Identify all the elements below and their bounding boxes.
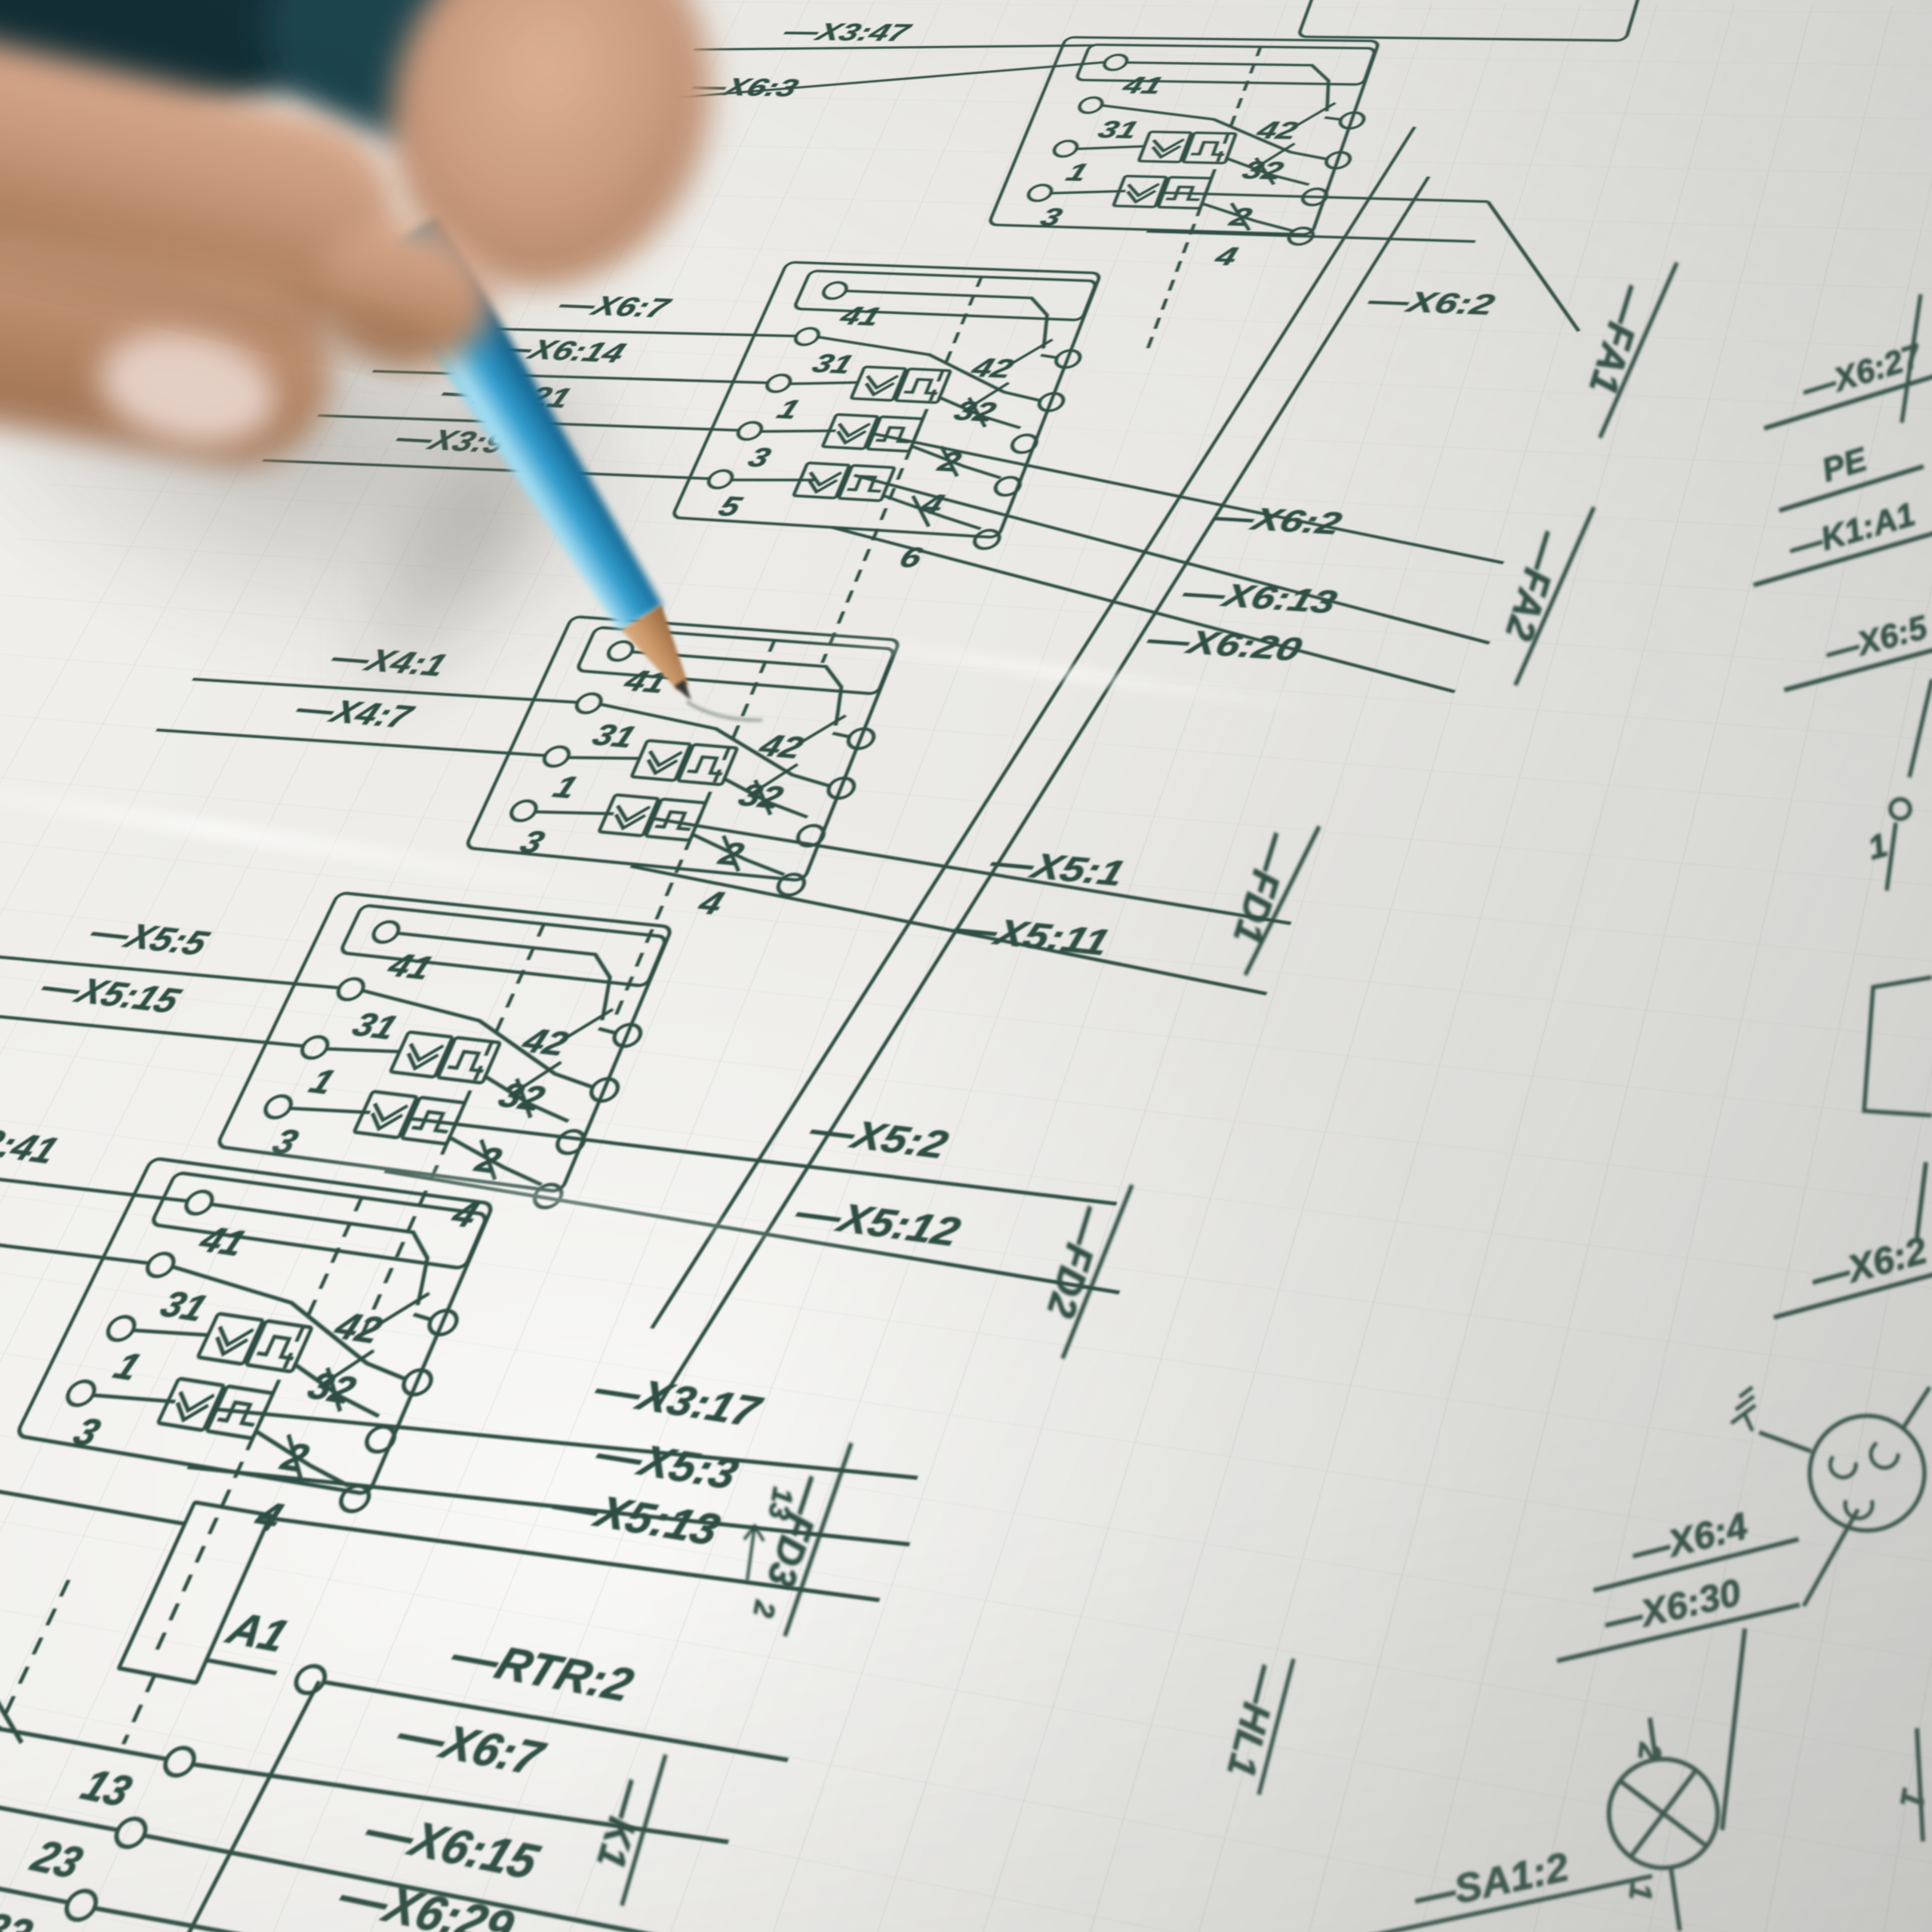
svg-text:—X6:7: —X6:7 bbox=[552, 289, 676, 323]
svg-text:2: 2 bbox=[1225, 204, 1255, 232]
svg-text:—X6:20: —X6:20 bbox=[1141, 621, 1306, 668]
svg-text:31: 31 bbox=[154, 1285, 212, 1330]
svg-text:—X6:7: —X6:7 bbox=[389, 1707, 552, 1786]
svg-text:—X6:2: —X6:2 bbox=[1207, 499, 1346, 540]
svg-text:—X6:21: —X6:21 bbox=[435, 377, 576, 414]
svg-text:—X6:4: —X6:4 bbox=[1627, 1505, 1752, 1574]
svg-text:5: 5 bbox=[714, 492, 746, 523]
svg-text:—X5:11: —X5:11 bbox=[946, 908, 1114, 963]
svg-text:2: 2 bbox=[274, 1436, 315, 1481]
svg-text:—SA1:2: —SA1:2 bbox=[1410, 1844, 1573, 1921]
svg-text:42: 42 bbox=[753, 729, 808, 765]
svg-text:31: 31 bbox=[346, 1007, 402, 1047]
svg-text:41: 41 bbox=[619, 665, 672, 700]
svg-text:41: 41 bbox=[381, 948, 437, 987]
svg-text:—X3:47: —X3:47 bbox=[778, 18, 915, 46]
svg-text:42: 42 bbox=[328, 1306, 388, 1352]
svg-text:A1: A1 bbox=[219, 1603, 295, 1661]
svg-text:—X5:5: —X5:5 bbox=[82, 913, 216, 963]
svg-text:1: 1 bbox=[303, 1063, 340, 1102]
svg-text:1: 1 bbox=[1893, 1786, 1932, 1810]
svg-text:1: 1 bbox=[1623, 1881, 1660, 1902]
svg-text:41: 41 bbox=[192, 1220, 251, 1264]
svg-text:—X4:1: —X4:1 bbox=[325, 640, 453, 682]
svg-text:33: 33 bbox=[0, 1905, 39, 1932]
svg-text:2: 2 bbox=[1632, 1740, 1669, 1762]
svg-text:—X5:12: —X5:12 bbox=[789, 1190, 966, 1255]
svg-text:31: 31 bbox=[808, 349, 857, 379]
svg-text:—X6:14: —X6:14 bbox=[490, 333, 631, 368]
svg-text:2: 2 bbox=[713, 837, 749, 873]
svg-text:—X3:9: —X3:9 bbox=[389, 422, 512, 459]
svg-text:—X4:7: —X4:7 bbox=[289, 691, 420, 734]
svg-text:31: 31 bbox=[587, 719, 640, 755]
svg-text:42: 42 bbox=[967, 354, 1017, 384]
svg-text:—X5:15: —X5:15 bbox=[33, 967, 188, 1020]
svg-text:—X6:2: —X6:2 bbox=[1363, 285, 1498, 321]
svg-text:4: 4 bbox=[693, 885, 728, 922]
svg-text:42: 42 bbox=[515, 1023, 573, 1063]
svg-text:1: 1 bbox=[548, 771, 582, 804]
svg-text:31: 31 bbox=[1094, 117, 1142, 143]
svg-text:—X6:2: —X6:2 bbox=[1806, 1229, 1931, 1300]
svg-text:13: 13 bbox=[74, 1762, 138, 1817]
svg-text:—X6:3: —X6:3 bbox=[686, 72, 803, 101]
svg-text:1: 1 bbox=[107, 1346, 146, 1389]
svg-text:1: 1 bbox=[773, 395, 804, 425]
svg-text:4: 4 bbox=[1211, 243, 1241, 272]
svg-text:41: 41 bbox=[835, 303, 885, 331]
svg-text:2: 2 bbox=[469, 1141, 506, 1181]
svg-text:3: 3 bbox=[743, 443, 775, 473]
svg-text:23: 23 bbox=[23, 1832, 89, 1888]
svg-text:41: 41 bbox=[1118, 73, 1166, 100]
svg-text:—X6:5: —X6:5 bbox=[1821, 608, 1931, 671]
svg-text:1: 1 bbox=[1063, 160, 1092, 186]
